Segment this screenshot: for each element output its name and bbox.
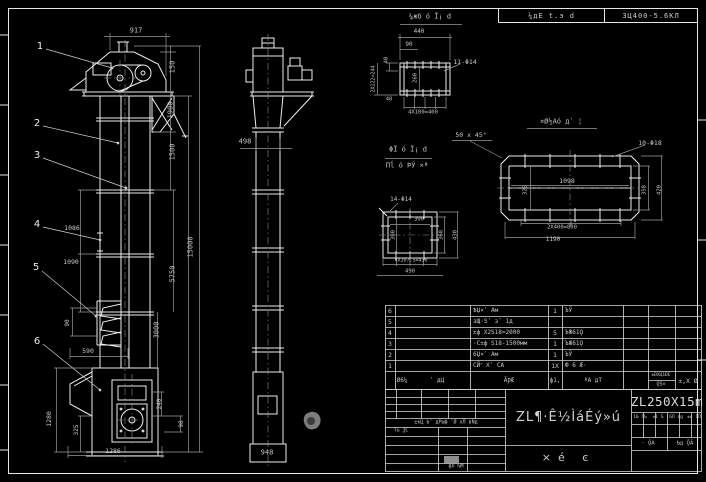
titleblock-highlight-cell xyxy=(444,456,459,463)
part-row-material: ЪЎ xyxy=(565,352,572,358)
table-col-header-4: ªА дТ xyxy=(584,378,602,384)
part-row-name: 6Џ×ʹ Ам xyxy=(473,352,498,358)
part-row-no: 3 xyxy=(388,341,392,348)
center-lines xyxy=(104,34,643,466)
drawing-title: ZL¶·Ê½ÌáÉý»ú xyxy=(506,405,631,429)
dim-917: 917 xyxy=(130,28,143,35)
dim-490: 490 xyxy=(405,269,415,275)
ratio-col-header: ±ь 1Ǘ xyxy=(687,416,701,421)
cad-drawing-sheet: 1234569171501900150015000575030002409810… xyxy=(0,0,706,482)
dim-325: 325 xyxy=(74,425,80,436)
cursor-smudge xyxy=(304,412,321,430)
part-row-name: ѢЏ×ʹ Ам xyxy=(473,308,498,314)
dim-1500: 1500 xyxy=(170,144,177,161)
part-row-name: ·С±ф Ѕ18-1500мм xyxy=(473,341,527,347)
stage-col-header: 1Ƕ ΓЬ xyxy=(633,416,647,421)
part-row-material: Ф 6 Æ· xyxy=(565,363,587,369)
part-row-no: 6 xyxy=(388,308,392,315)
dim-590: 590 xyxy=(82,348,94,355)
balloon-3: 3 xyxy=(34,151,40,161)
chamfer-note: 50 x 45° xyxy=(455,132,486,139)
hole-note-11-phi14: 11-Φ14 xyxy=(453,59,476,66)
hole-note-14-phi14: 14-Φ14 xyxy=(390,197,412,203)
balloon-leaders xyxy=(42,49,127,391)
part-row-name: СЙʺ Хʹ СА xyxy=(473,363,504,369)
dim-1900: 1900 xyxy=(168,102,175,119)
dim-1098: 1098 xyxy=(559,178,575,185)
dim-300-v: 300 xyxy=(391,230,397,240)
balloon-1: 1 xyxy=(37,42,43,52)
dim-240: 240 xyxy=(157,399,163,410)
dim-498: 498 xyxy=(239,139,252,146)
sheet-count-label: · ǬА xyxy=(641,441,654,447)
table-col-header-7: ±,Х Ø xyxy=(678,377,698,384)
dim-325-left: 325 xyxy=(523,185,529,195)
dim-90-offset: 90 xyxy=(405,42,412,48)
dim-1286: 1286 xyxy=(105,448,121,455)
view-label-long: ¤Ø½Аó дʹ ¦ xyxy=(540,119,582,126)
dim-40: 40 xyxy=(384,57,390,64)
model-designation: ZL250X15m xyxy=(632,391,702,412)
table-col-header-0: Ø6¼ xyxy=(397,378,408,384)
sheet-header-project-cell: ¼дЕ t.э d xyxy=(499,9,604,22)
dim-90: 90 xyxy=(65,319,71,326)
dim-260: 260 xyxy=(413,73,419,83)
part-row-no: 2 xyxy=(388,352,392,359)
dim-2x122: 2X122=244 xyxy=(372,65,377,92)
dim-430: 430 xyxy=(453,230,459,240)
dim-2x400: 2X400=800 xyxy=(547,225,577,231)
dim-98: 98 xyxy=(179,420,185,427)
dim-1090: 1090 xyxy=(63,259,79,266)
dim-4x100: 4X100=400 xyxy=(408,110,438,116)
part-row-qty: 1 xyxy=(553,308,557,315)
table-col-header-5: ±ƉХЦ1ƉЕ xyxy=(652,374,671,379)
part-row-material: ЪЖ61Ǫ xyxy=(565,341,583,347)
part-row-qty: 5 xyxy=(553,330,557,337)
balloon-2: 2 xyxy=(34,119,40,129)
dim-15000: 15000 xyxy=(188,236,195,257)
dim-300-h: 300 xyxy=(414,217,424,223)
table-col-header-1: ʹ дЦ xyxy=(430,378,444,384)
part-row-name: ±ф Х2Ѕ18=2000 xyxy=(473,330,520,336)
revision-header: ±кЦ Ьʹ дΡшф ʹǾ хЛ вÑд xyxy=(414,421,477,426)
view-label-square-line1: ΦΪ ó Ī¡ d xyxy=(389,147,427,154)
part-row-name: зЩ·Ѕʹ зʹ 1д xyxy=(473,319,513,325)
balloon-5: 5 xyxy=(33,263,39,273)
dim-1190: 1190 xyxy=(546,237,560,243)
designer-row-label: Ƭь ѮС xyxy=(394,429,409,434)
scale-col-header: ǴЛ ɛg xyxy=(669,416,683,421)
table-col-header-2: ÃǷÆ xyxy=(504,378,515,384)
dim-5750: 5750 xyxy=(170,266,177,283)
part-row-no: 1 xyxy=(388,363,392,370)
part-row-no: 4 xyxy=(388,330,392,337)
dim-440: 440 xyxy=(414,29,425,35)
dim-40-b: 40 xyxy=(386,97,393,103)
dim-368: 368 xyxy=(439,230,445,240)
table-col-header-3: ф1, xyxy=(550,378,561,384)
dim-3000: 3000 xyxy=(154,322,161,339)
dim-4x107: 4X107.5=430 xyxy=(394,259,427,264)
part-row-qty: 1Х xyxy=(551,363,559,370)
weight-col-header: ±1 Ǧ xyxy=(653,416,664,421)
view-label-square-line2: Πĺ ó ÞЎ ×ª xyxy=(386,163,428,170)
dim-358: 358 xyxy=(642,185,648,195)
dim-420: 420 xyxy=(657,185,663,195)
dim-150: 150 xyxy=(170,61,177,74)
sheet-header-code-cell: 3Ц400-5.6КЛ xyxy=(605,9,697,22)
view-label-top-detail: ¼жб ó Ī¡ d xyxy=(409,14,451,21)
part-row-material: ЪЖ61Ǫ xyxy=(565,330,583,336)
drawing-sheet-type: ×é ͼ xyxy=(506,449,631,465)
dim-1086: 1086 xyxy=(64,225,80,232)
dim-948: 948 xyxy=(261,450,274,457)
approver-row-label: фЛ ƕМ xyxy=(448,465,463,470)
hole-note-10-phi18: 10-Φ18 xyxy=(638,140,661,147)
part-row-qty: 1 xyxy=(553,341,557,348)
balloon-4: 4 xyxy=(34,220,40,230)
part-row-material: ЪЎ xyxy=(565,308,572,314)
part-row-no: 5 xyxy=(388,319,392,326)
dim-1280: 1280 xyxy=(46,411,53,427)
part-row-qty: 1 xyxy=(553,352,557,359)
sheet-number-label: Ƅд ǬĀ xyxy=(677,441,694,447)
balloon-6: 6 xyxy=(34,337,40,347)
table-col-header-6: ǬЅ× xyxy=(656,383,665,388)
dimension-lines xyxy=(54,25,663,459)
